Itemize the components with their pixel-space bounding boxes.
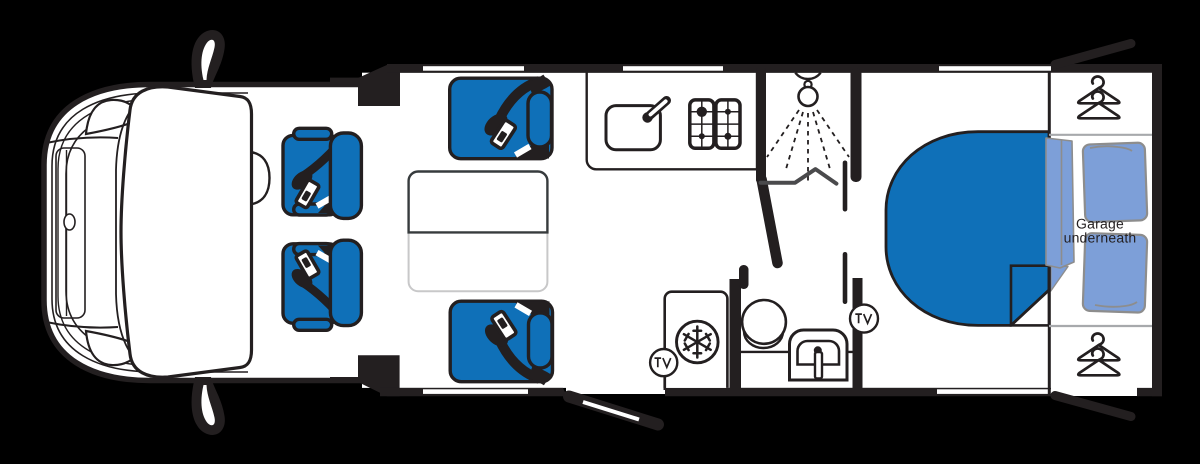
svg-text:underneath: underneath [1064,230,1137,246]
